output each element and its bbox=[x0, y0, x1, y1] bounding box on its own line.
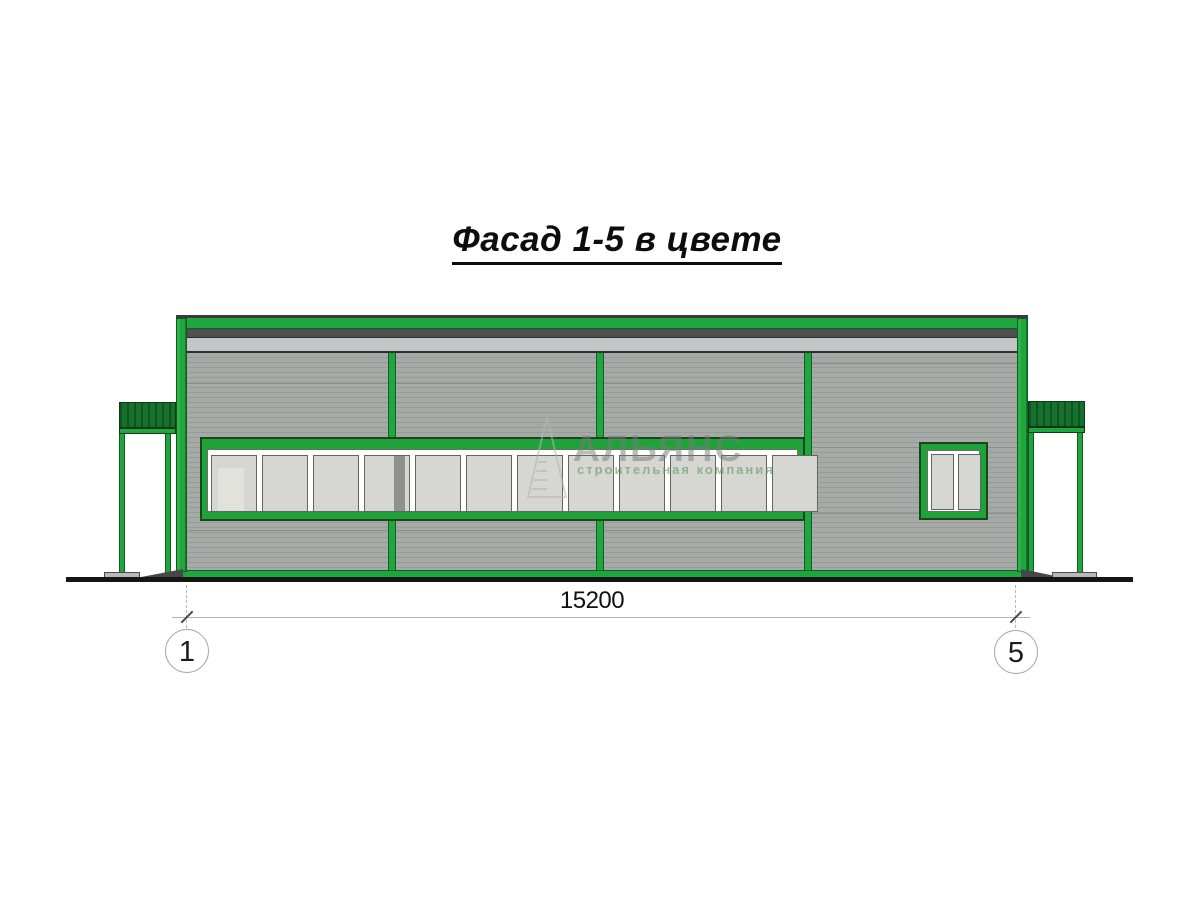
small-window-glass bbox=[927, 450, 980, 512]
dimension-line bbox=[172, 617, 1030, 618]
corner-column-left bbox=[176, 318, 187, 572]
base-green-strip bbox=[176, 570, 1028, 577]
axis-bubble-1: 1 bbox=[165, 629, 209, 673]
ribbon-window-pane bbox=[670, 455, 716, 512]
ribbon-window-pane bbox=[517, 455, 563, 512]
ribbon-window-frame bbox=[200, 437, 805, 521]
parapet-dark-band bbox=[187, 329, 1017, 338]
ribbon-window-pane bbox=[721, 455, 767, 512]
right-canopy-post-outer bbox=[1077, 433, 1083, 576]
ribbon-window-pane bbox=[466, 455, 512, 512]
ribbon-window-pane bbox=[772, 455, 818, 512]
drawing-title: Фасад 1-5 в цвете bbox=[452, 220, 782, 265]
extension-line-axis1 bbox=[186, 585, 187, 628]
ground-line bbox=[66, 577, 1133, 582]
ribbon-window-pane bbox=[364, 455, 410, 512]
small-window-pane bbox=[958, 454, 981, 510]
roof-parapet-green-band bbox=[176, 315, 1028, 329]
panel-joint-line bbox=[187, 383, 804, 384]
right-canopy-roof bbox=[1028, 401, 1085, 427]
small-window-frame bbox=[919, 442, 988, 520]
right-canopy-post-inner bbox=[1028, 433, 1034, 576]
ribbon-window-pane bbox=[568, 455, 614, 512]
ribbon-window-pane bbox=[415, 455, 461, 512]
left-canopy-roof bbox=[119, 402, 176, 428]
left-canopy-post-inner bbox=[165, 434, 171, 576]
parapet-light-band bbox=[187, 338, 1017, 353]
mullion-axis3-lower bbox=[596, 518, 604, 570]
extension-line-axis5 bbox=[1015, 585, 1016, 628]
panel-joint-line bbox=[187, 530, 804, 531]
corner-column-right bbox=[1017, 318, 1028, 572]
mullion-axis2-upper bbox=[388, 353, 396, 443]
ribbon-window-glass bbox=[207, 449, 798, 512]
dimension-value: 15200 bbox=[512, 587, 672, 615]
drawing-canvas: Фасад 1-5 в цвете 15200 1 5 bbox=[0, 0, 1200, 900]
left-canopy-post-outer bbox=[119, 434, 125, 576]
axis-bubble-5: 5 bbox=[994, 630, 1038, 674]
ribbon-window-pane bbox=[262, 455, 308, 512]
mullion-axis3-upper bbox=[596, 353, 604, 443]
small-window-pane bbox=[931, 454, 954, 510]
panel-joint-line bbox=[808, 363, 1017, 364]
mullion-axis2-lower bbox=[388, 518, 396, 570]
ribbon-window-pane bbox=[619, 455, 665, 512]
ribbon-window-pane bbox=[313, 455, 359, 512]
ribbon-window-pane bbox=[211, 455, 257, 512]
